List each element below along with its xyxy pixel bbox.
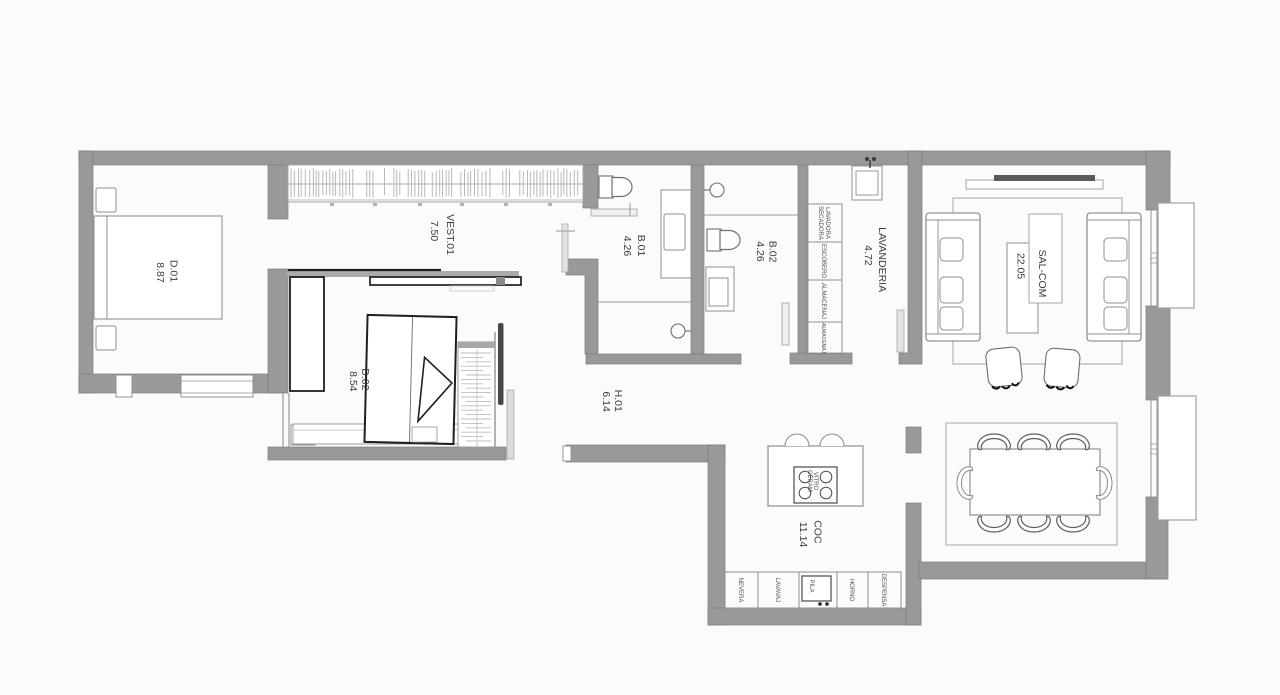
svg-text:4.26: 4.26	[621, 236, 633, 257]
svg-text:6.14: 6.14	[600, 391, 612, 412]
svg-text:SECADORA: SECADORA	[817, 206, 823, 240]
svg-text:7.50: 7.50	[428, 221, 440, 242]
svg-text:HORNO: HORNO	[848, 579, 854, 602]
svg-text:LAVADORA: LAVADORA	[824, 207, 830, 239]
svg-text:4.72: 4.72	[862, 245, 874, 266]
svg-text:8.87: 8.87	[154, 262, 166, 283]
svg-text:4.26: 4.26	[754, 241, 766, 262]
svg-text:D.02: D.02	[359, 368, 371, 390]
svg-text:H.01: H.01	[612, 390, 624, 412]
svg-text:LAVAVAJ: LAVAVAJ	[774, 578, 780, 603]
svg-text:ESCOBERO: ESCOBERO	[820, 244, 826, 278]
svg-text:ALMACENAJ: ALMACENAJ	[820, 323, 826, 354]
svg-text:PILA: PILA	[808, 579, 814, 592]
svg-text:VEST.01: VEST.01	[444, 214, 456, 255]
svg-text:DESPENSA: DESPENSA	[880, 574, 886, 607]
svg-text:COC: COC	[812, 520, 824, 544]
svg-text:NEVERA: NEVERA	[737, 578, 743, 603]
svg-text:8.54: 8.54	[347, 371, 359, 392]
svg-text:B.01: B.01	[635, 235, 647, 257]
svg-text:CERAM: CERAM	[806, 470, 812, 492]
svg-text:22.05: 22.05	[1015, 253, 1027, 279]
svg-text:11.14: 11.14	[797, 522, 809, 548]
svg-text:LAVANDERIA: LAVANDERIA	[876, 227, 888, 292]
svg-text:D.01: D.01	[168, 260, 180, 282]
svg-text:ALMACENAJ: ALMACENAJ	[820, 283, 826, 319]
svg-text:SAL-COM: SAL-COM	[1036, 250, 1048, 298]
svg-text:B.02: B.02	[767, 241, 779, 263]
